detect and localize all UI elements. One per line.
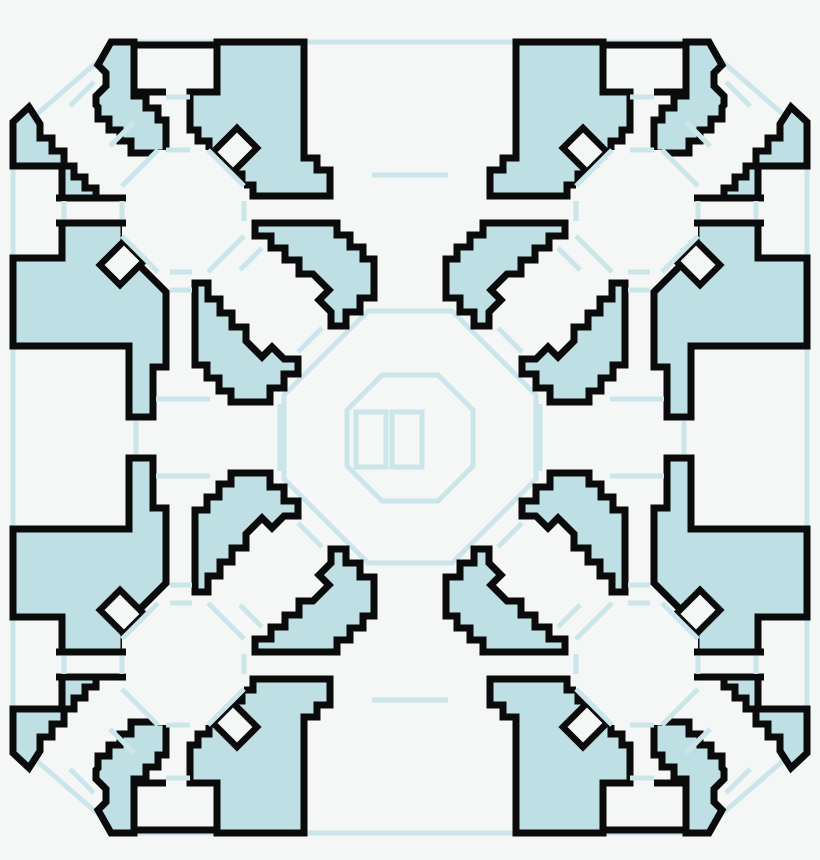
map-canvas: [0, 0, 820, 860]
arena-map-svg: [0, 0, 820, 860]
